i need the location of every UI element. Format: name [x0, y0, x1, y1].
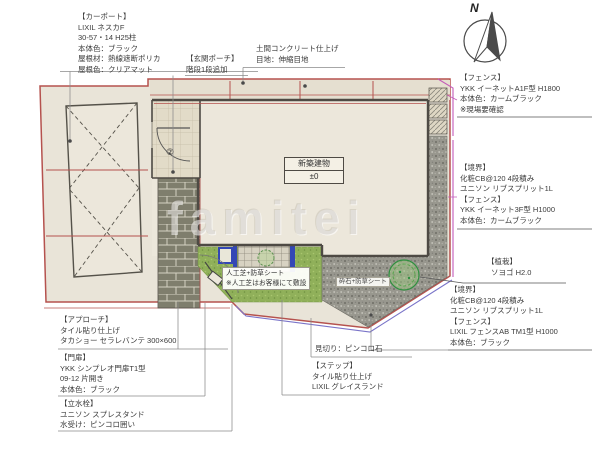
gravel-note: 砕石+防草シート — [336, 277, 390, 287]
label-carport: 【カーポート】 LIXIL ネスカF 30-57・14 H25柱 本体色：ブラッ… — [78, 12, 161, 75]
building-level: ±0 — [285, 170, 343, 183]
label-boundary-east: 【境界】 化粧CB@120 4段積み ユニソン リブスプリット1L 【フェンス】… — [460, 163, 555, 226]
building-name: 新築建物 — [285, 158, 343, 170]
label-planting: 【植栽】 ソヨゴ H2.0 — [487, 257, 531, 278]
watermark: famitei — [166, 190, 367, 245]
label-approach: 【アプローチ】 タイル貼り仕上げ タカショー セラレバンテ 300×600 — [60, 315, 176, 347]
turf-note: 人工芝+防草シート ※人工芝はお客様にて敷設 — [222, 267, 310, 290]
porch-number: ② — [166, 147, 174, 158]
label-gate: 【門扉】 YKK シンプレオ門扉T1型 09-12 片開き 本体色：ブラック — [60, 353, 146, 395]
label-water-tap: 【立水栓】 ユニソン スプレスタンド 水受け：ピンコロ囲い — [60, 399, 145, 431]
small-tree-icon — [258, 250, 274, 266]
building-label: 新築建物 ±0 — [284, 157, 344, 184]
concrete-apron — [150, 80, 450, 100]
site-plan-canvas: famitei N ② 新築建物 ±0 人工芝+防草シート ※人工芝はお客様にて… — [0, 0, 600, 450]
label-boundary-south: 【境界】 化粧CB@120 4段積み ユニソン リブスプリット1L 【フェンス】… — [450, 285, 558, 348]
label-step: 【ステップ】 タイル貼り仕上げ LIXIL グレイスランド — [312, 361, 384, 393]
label-concrete: 土間コンクリート仕上げ 目地：伸縮目地 — [256, 44, 339, 65]
cb-wall-block — [429, 120, 447, 134]
label-porch: 【玄関ポーチ】 階段1段追加 — [186, 54, 239, 75]
cb-wall-block — [429, 104, 447, 118]
cb-wall-block — [429, 88, 447, 102]
entrance-porch — [152, 100, 200, 178]
label-edging: 見切り：ピンコロ石 — [315, 344, 383, 355]
north-label: N — [470, 1, 479, 15]
tree-icon — [389, 260, 419, 290]
north-arrow-icon — [464, 12, 506, 62]
label-fence-ne: 【フェンス】 YKK イーネットA1F型 H1800 本体色：カームブラック ※… — [460, 73, 560, 115]
